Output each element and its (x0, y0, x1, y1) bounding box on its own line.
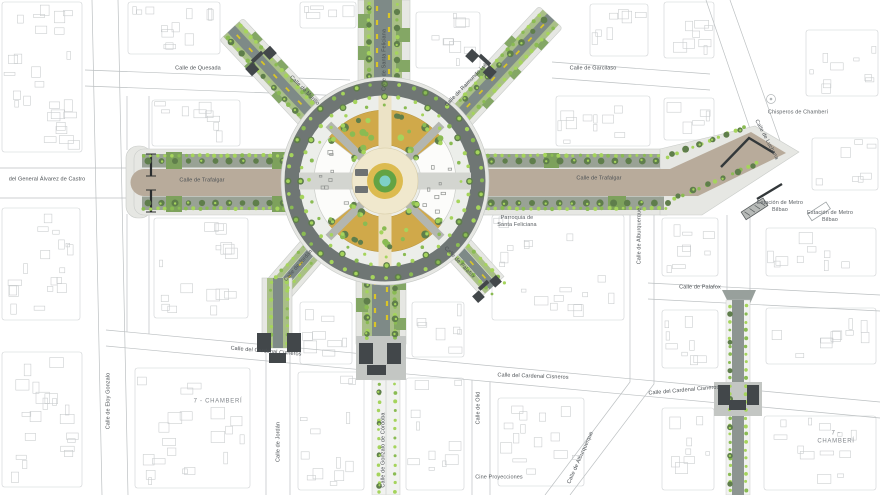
map-viewport: Calle de Quesada Calle de Garcilaso Chis… (0, 0, 880, 495)
plaza-roundabout (281, 77, 489, 285)
boulevard-santa-feliciana (358, 0, 410, 84)
kiosk-structure (355, 169, 368, 176)
chisperos-monument (767, 95, 776, 104)
metro-entrance-structure (741, 198, 768, 220)
city-plan-map (0, 0, 880, 495)
fountain-pool (380, 176, 391, 187)
metro-entrance-outline (808, 202, 831, 221)
